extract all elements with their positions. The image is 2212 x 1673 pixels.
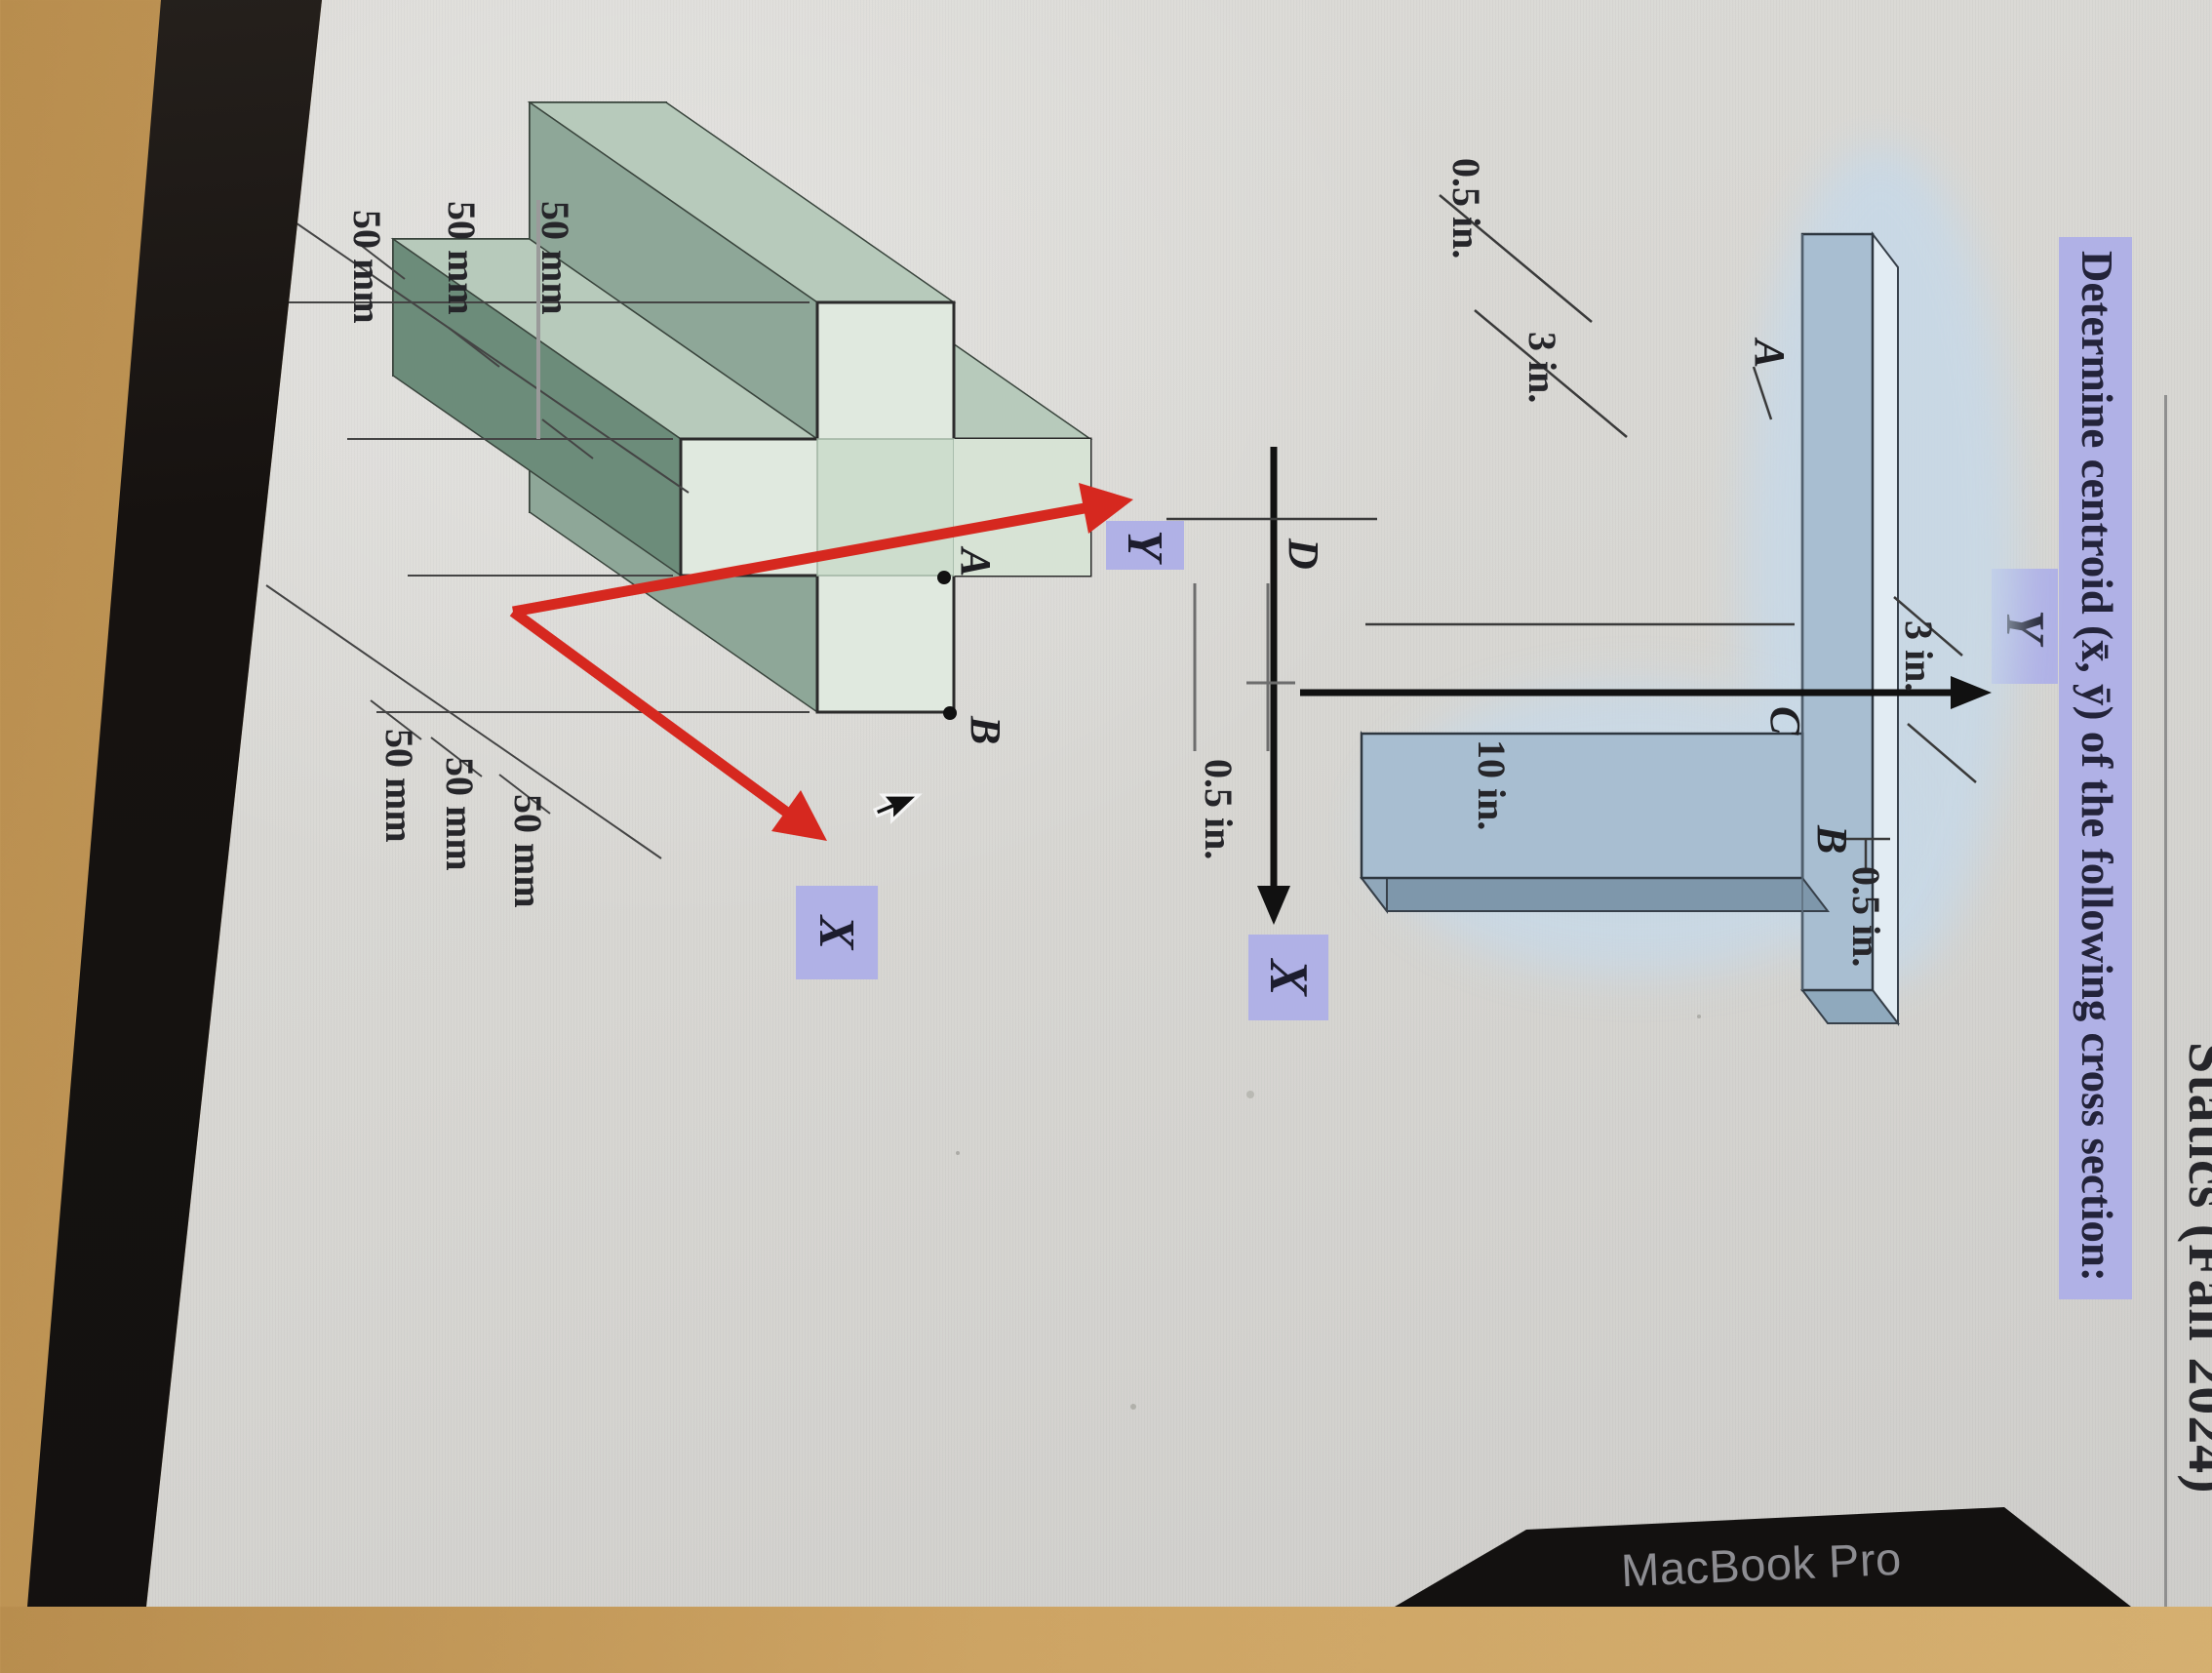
fig2-point-a: A xyxy=(952,545,1000,577)
fig2-dim-3: 50 mm xyxy=(345,210,389,324)
fig1-dim-05-left: 0.5 in. xyxy=(1444,158,1488,259)
fig2-dim-5: 50 mm xyxy=(438,757,482,871)
fig1-dim-3-left: 3 in. xyxy=(1521,332,1564,403)
mouse-cursor-icon xyxy=(875,795,919,820)
fig1-web-side-face xyxy=(1362,878,1828,911)
laptop-screen: Statics (Fall 2024) Determine centroid (… xyxy=(0,0,2212,1607)
fig1-dim-10: 10 in. xyxy=(1470,739,1514,830)
fig2-point-b-dot xyxy=(943,706,957,720)
fig1-dim-05-bottom: 0.5 in. xyxy=(1197,759,1241,859)
fig2-dim-6: 50 mm xyxy=(506,794,550,908)
fig1-point-a: A xyxy=(1746,337,1794,368)
figure2-plus-section: A B 50 mm 50 mm 50 mm 50 mm 50 mm 50 mm xyxy=(266,102,1133,908)
fig2-point-a-dot xyxy=(937,571,951,584)
fig1-web-front-face xyxy=(1362,734,1802,878)
fig1-point-b: B xyxy=(1808,824,1856,854)
fig2-dim-2: 50 mm xyxy=(440,201,484,315)
fig1-dim-3-top: 3 in. xyxy=(1897,620,1941,692)
fig1-dim-05-right: 0.5 in. xyxy=(1844,866,1888,967)
fig2-point-b: B xyxy=(962,715,1009,744)
photo-of-macbook: { "device": { "brand_label": "MacBook Pr… xyxy=(0,0,2212,1607)
fig2-dim-4: 50 mm xyxy=(377,729,421,843)
fig1-dim-ext-lines xyxy=(1195,583,1295,751)
figure1-t-section: 0.5 in. 3 in. 3 in. 10 in. 0.5 in. 0.5 i… xyxy=(1166,146,2017,1023)
fig2-dim-1: 50 mm xyxy=(533,201,577,315)
fig1-x-axis-arrowhead xyxy=(1257,886,1290,925)
fig1-point-d: D xyxy=(1280,538,1327,570)
figures-canvas: 0.5 in. 3 in. 3 in. 10 in. 0.5 in. 0.5 i… xyxy=(224,0,2212,1607)
rotated-document: Statics (Fall 2024) Determine centroid (… xyxy=(224,0,2212,1607)
fig1-point-c: C xyxy=(1761,706,1809,736)
fig2-x-axis-arrowhead xyxy=(771,790,827,841)
